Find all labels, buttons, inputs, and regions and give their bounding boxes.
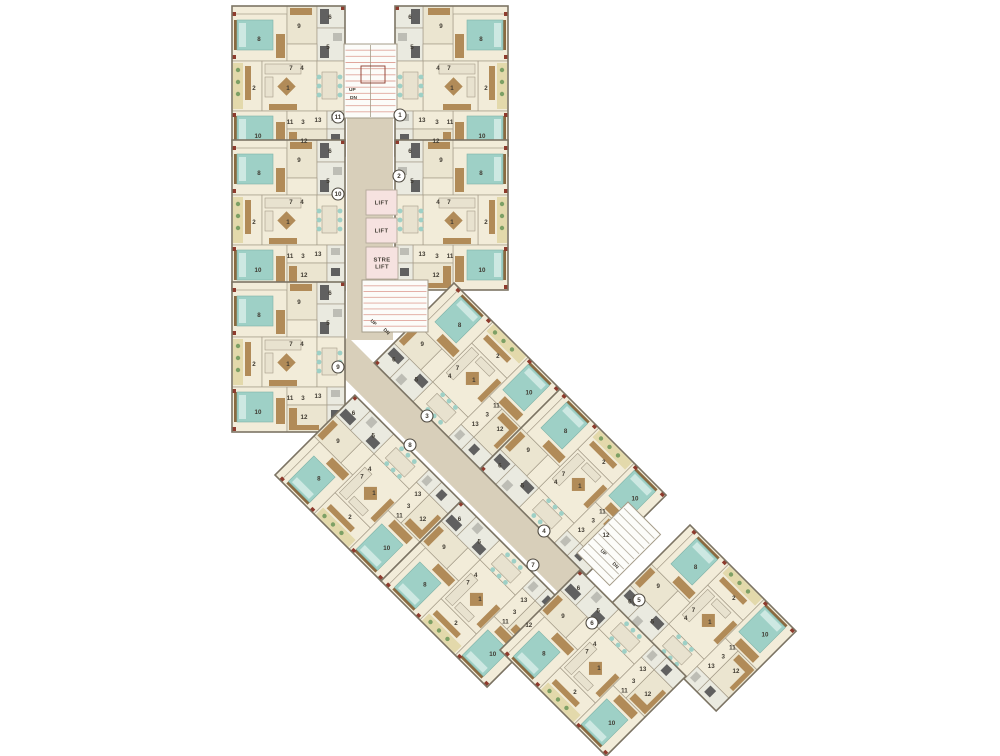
sofa-icon (265, 211, 273, 231)
room-label: 1 (286, 361, 290, 368)
stair-direction-label: UP (349, 87, 356, 93)
room-label: 2 (484, 219, 488, 226)
room-label: 10 (632, 496, 639, 503)
room-label: 7 (466, 580, 470, 587)
apartment-unit-2 (395, 140, 508, 290)
room-label: 2 (252, 85, 256, 92)
room-label: 13 (315, 117, 322, 124)
chair-icon (419, 75, 424, 80)
pillows-icon (239, 253, 246, 277)
chair-icon (317, 209, 322, 214)
unit-number: 4 (542, 528, 546, 535)
floor-plan: LIFTLIFTSTRELIFTUPDNUPDNUPDN111091234587… (0, 0, 1000, 756)
wardrobe-icon (290, 8, 312, 15)
unit-number: 8 (408, 442, 412, 449)
plant-icon (236, 80, 240, 84)
room-label: 8 (542, 651, 546, 658)
chair-icon (398, 75, 403, 80)
pillows-icon (239, 299, 246, 323)
wardrobe-icon (455, 34, 464, 58)
chair-icon (338, 209, 343, 214)
plant-icon (500, 92, 504, 96)
unit-number: 10 (334, 191, 342, 198)
room-label: 8 (479, 170, 483, 177)
room-label: 7 (289, 341, 293, 348)
room-label: 13 (315, 393, 322, 400)
dining-table-icon (322, 206, 337, 233)
unit-number: 1 (398, 112, 402, 119)
chair-icon (338, 218, 343, 223)
room-label: 8 (257, 36, 261, 43)
lift-label: LIFT (375, 201, 389, 207)
headboard-icon (503, 20, 506, 50)
room-label: 1 (286, 85, 290, 92)
room-label: 3 (722, 654, 726, 661)
lift-label: STRELIFT (373, 258, 390, 271)
headboard-icon (234, 20, 237, 50)
room-label: 13 (419, 117, 426, 124)
room-label: 4 (554, 479, 558, 486)
room-label: 6 (352, 410, 356, 417)
room-label: 9 (442, 544, 446, 551)
room-label: 10 (255, 409, 262, 416)
room-label: 11 (396, 512, 403, 519)
wc-icon (331, 390, 340, 397)
room-label: 13 (414, 491, 421, 498)
room-label: 2 (252, 361, 256, 368)
room-label: 10 (383, 545, 390, 552)
room-label: 9 (561, 613, 565, 620)
room-label: 5 (521, 482, 525, 489)
plant-icon (236, 344, 240, 348)
room-label: 12 (419, 516, 426, 523)
room-label: 5 (326, 320, 330, 327)
room-label: 6 (577, 585, 581, 592)
unit-number: 11 (335, 114, 342, 121)
apartment-unit-1 (395, 6, 508, 156)
room-label: 1 (578, 483, 582, 490)
tv-unit-icon (269, 238, 297, 244)
plant-icon (500, 68, 504, 72)
room-label: 2 (732, 595, 736, 602)
room-label: 9 (297, 157, 301, 164)
room-label: 13 (708, 663, 715, 670)
room-label: 3 (435, 253, 439, 260)
basin-icon (398, 33, 407, 41)
plant-icon (500, 226, 504, 230)
room-label: 4 (300, 199, 304, 206)
room-label: 11 (493, 402, 500, 409)
room-label: 4 (448, 373, 452, 380)
chair-icon (398, 93, 403, 98)
sofa-icon (265, 340, 301, 350)
room-label: 11 (447, 119, 454, 126)
tv-unit-icon (269, 104, 297, 110)
room-label: 8 (317, 476, 321, 483)
room-label: 8 (458, 322, 462, 329)
room-label: 9 (526, 447, 530, 454)
bath-fixture-icon (411, 143, 420, 158)
room-hall-passage (423, 178, 453, 195)
apartment-unit-9 (232, 282, 345, 432)
floor-plan-svg: LIFTLIFTSTRELIFTUPDNUPDNUPDN111091234587… (0, 0, 1000, 756)
room-label: 9 (420, 341, 424, 348)
room-label: 10 (479, 267, 486, 274)
room-label: 4 (300, 65, 304, 72)
room-label: 4 (474, 572, 478, 579)
room-label: 5 (326, 44, 330, 51)
plant-icon (500, 214, 504, 218)
room-label: 13 (639, 666, 646, 673)
unit-number: 9 (336, 364, 340, 371)
room-label: 12 (644, 691, 651, 698)
sofa-icon (265, 353, 273, 373)
chair-icon (419, 218, 424, 223)
room-label: 2 (252, 219, 256, 226)
headboard-icon (234, 250, 237, 280)
chair-icon (338, 351, 343, 356)
wc-icon (331, 248, 340, 255)
room-label: 11 (621, 687, 628, 694)
room-label: 1 (286, 219, 290, 226)
room-label: 12 (301, 414, 308, 421)
room-label: 13 (315, 251, 322, 258)
chair-icon (398, 227, 403, 232)
bench-icon (489, 66, 495, 100)
plant-icon (236, 368, 240, 372)
stair-direction-label: DN (350, 95, 357, 101)
room-label: 4 (684, 615, 688, 622)
chair-icon (317, 93, 322, 98)
room-hall-passage (423, 44, 453, 61)
room-label: 5 (415, 376, 419, 383)
wardrobe-icon (428, 8, 450, 15)
room-label: 1 (708, 619, 712, 626)
room-label: 7 (562, 471, 566, 478)
room-label: 4 (300, 341, 304, 348)
chair-icon (419, 209, 424, 214)
washer-icon (400, 268, 409, 276)
room-label: 1 (472, 377, 476, 384)
chair-icon (317, 75, 322, 80)
chair-icon (398, 209, 403, 214)
room-label: 5 (597, 608, 601, 615)
room-label: 3 (301, 119, 305, 126)
room-label: 6 (328, 148, 332, 155)
room-label: 5 (410, 178, 414, 185)
room-label: 12 (603, 532, 610, 539)
chair-icon (317, 84, 322, 89)
sofa-icon (467, 211, 475, 231)
room-label: 2 (454, 620, 458, 627)
room-label: 5 (372, 433, 376, 440)
sofa-icon (439, 198, 475, 208)
room-label: 3 (407, 503, 411, 510)
headboard-icon (234, 154, 237, 184)
staircase (344, 44, 397, 118)
bench-icon (489, 200, 495, 234)
room-label: 9 (297, 299, 301, 306)
room-label: 11 (287, 395, 294, 402)
room-label: 2 (496, 353, 500, 360)
room-label: 9 (297, 23, 301, 30)
room-hall-passage (287, 44, 317, 61)
room-label: 12 (497, 426, 504, 433)
room-label: 12 (433, 272, 440, 279)
room-label: 11 (599, 508, 606, 515)
room-label: 4 (593, 641, 597, 648)
room-label: 6 (498, 462, 502, 469)
room-label: 8 (257, 312, 261, 319)
room-label: 12 (301, 138, 308, 145)
headboard-icon (234, 296, 237, 326)
room-label: 3 (632, 678, 636, 685)
tv-unit-icon (269, 380, 297, 386)
room-label: 12 (525, 622, 532, 629)
room-label: 10 (526, 390, 533, 397)
room-label: 6 (628, 598, 632, 605)
room-label: 8 (694, 564, 698, 571)
room-label: 2 (602, 459, 606, 466)
room-label: 3 (592, 518, 596, 525)
unit-number: 5 (637, 597, 641, 604)
headboard-icon (234, 392, 237, 422)
plant-icon (236, 214, 240, 218)
basin-icon (333, 167, 342, 175)
room-label: 7 (447, 65, 451, 72)
room-label: 6 (408, 14, 412, 21)
room-label: 11 (287, 119, 294, 126)
room-label: 9 (336, 438, 340, 445)
room-label: 13 (520, 597, 527, 604)
room-label: 11 (447, 253, 454, 260)
bath-fixture-icon (411, 9, 420, 24)
lift-label: LIFT (375, 229, 389, 235)
chair-icon (317, 360, 322, 365)
pillows-icon (239, 157, 246, 181)
room-label: 11 (287, 253, 294, 260)
room-label: 3 (301, 395, 305, 402)
room-label: 10 (762, 632, 769, 639)
bench-icon (245, 342, 251, 376)
room-label: 1 (450, 219, 454, 226)
room-label: 4 (436, 199, 440, 206)
basin-icon (333, 309, 342, 317)
unit-number: 2 (397, 173, 401, 180)
room-label: 13 (472, 421, 479, 428)
room-label: 4 (436, 65, 440, 72)
sofa-icon (265, 77, 273, 97)
room-label: 12 (733, 668, 740, 675)
room-hall-passage (287, 320, 317, 337)
wardrobe-icon (276, 398, 285, 424)
wardrobe-icon (455, 168, 464, 192)
dining-table-icon (322, 72, 337, 99)
room-label: 7 (289, 65, 293, 72)
wardrobe-icon (276, 34, 285, 58)
chair-icon (317, 369, 322, 374)
room-label: 6 (408, 148, 412, 155)
plant-icon (500, 80, 504, 84)
apartment-unit-11 (232, 6, 345, 156)
room-label: 7 (289, 199, 293, 206)
wardrobe-icon (290, 284, 312, 291)
wardrobe-icon (276, 256, 285, 282)
room-label: 2 (573, 689, 577, 696)
room-label: 8 (423, 582, 427, 589)
room-label: 1 (597, 665, 601, 672)
headboard-icon (503, 154, 506, 184)
room-label: 5 (410, 44, 414, 51)
unit-number: 6 (590, 620, 594, 627)
room-label: 7 (456, 365, 460, 372)
chair-icon (419, 93, 424, 98)
room-label: 8 (564, 428, 568, 435)
plant-icon (236, 356, 240, 360)
sofa-icon (467, 77, 475, 97)
room-label: 12 (301, 272, 308, 279)
headboard-icon (503, 250, 506, 280)
room-label: 10 (255, 133, 262, 140)
dining-table-icon (403, 72, 418, 99)
plant-icon (236, 202, 240, 206)
room-label: 7 (447, 199, 451, 206)
bench-icon (245, 200, 251, 234)
kitchen-counter-icon (289, 425, 319, 430)
room-label: 11 (502, 618, 509, 625)
chair-icon (419, 84, 424, 89)
chair-icon (419, 227, 424, 232)
room-label: 6 (328, 290, 332, 297)
room-label: 13 (419, 251, 426, 258)
dining-table-icon (403, 206, 418, 233)
chair-icon (317, 218, 322, 223)
plant-icon (236, 226, 240, 230)
room-label: 10 (489, 651, 496, 658)
chair-icon (338, 227, 343, 232)
tv-unit-icon (443, 238, 471, 244)
unit-number: 7 (531, 562, 535, 569)
room-label: 8 (257, 170, 261, 177)
washer-icon (331, 268, 340, 276)
room-label: 1 (478, 596, 482, 603)
room-label: 6 (458, 516, 462, 523)
pillows-icon (239, 395, 246, 419)
wardrobe-icon (455, 256, 464, 282)
bench-icon (245, 66, 251, 100)
room-label: 3 (301, 253, 305, 260)
room-label: 5 (651, 618, 655, 625)
chair-icon (398, 218, 403, 223)
basin-icon (333, 33, 342, 41)
chair-icon (338, 93, 343, 98)
tv-unit-icon (443, 104, 471, 110)
wardrobe-icon (276, 310, 285, 334)
room-label: 13 (578, 527, 585, 534)
room-label: 9 (439, 157, 443, 164)
room-label: 6 (328, 14, 332, 21)
wardrobe-icon (276, 168, 285, 192)
room-label: 10 (255, 267, 262, 274)
plant-icon (500, 202, 504, 206)
room-label: 3 (513, 609, 517, 616)
room-label: 10 (608, 720, 615, 727)
room-label: 5 (478, 539, 482, 546)
plant-icon (236, 68, 240, 72)
chair-icon (317, 351, 322, 356)
pillows-icon (494, 253, 501, 277)
room-label: 1 (372, 490, 376, 497)
room-label: 2 (348, 514, 352, 521)
sofa-icon (265, 64, 301, 74)
room-label: 9 (656, 583, 660, 590)
chair-icon (338, 75, 343, 80)
chair-icon (398, 84, 403, 89)
sofa-icon (439, 64, 475, 74)
pillows-icon (494, 157, 501, 181)
room-label: 7 (360, 474, 364, 481)
room-label: 8 (479, 36, 483, 43)
room-label: 1 (450, 85, 454, 92)
room-label: 3 (435, 119, 439, 126)
room-label: 11 (729, 644, 736, 651)
room-label: 3 (486, 412, 490, 419)
room-label: 2 (484, 85, 488, 92)
room-label: 4 (368, 466, 372, 473)
room-label: 5 (326, 178, 330, 185)
sofa-icon (265, 198, 301, 208)
unit-number: 3 (425, 413, 429, 420)
room-label: 7 (585, 649, 589, 656)
wc-icon (400, 248, 409, 255)
room-hall-passage (287, 178, 317, 195)
room-label: 9 (439, 23, 443, 30)
chair-icon (338, 84, 343, 89)
room-label: 7 (692, 607, 696, 614)
pillows-icon (494, 23, 501, 47)
chair-icon (317, 227, 322, 232)
apartment-unit-10 (232, 140, 345, 290)
plant-icon (236, 92, 240, 96)
room-label: 6 (392, 356, 396, 363)
pillows-icon (239, 23, 246, 47)
room-label: 10 (479, 133, 486, 140)
room-label: 12 (433, 138, 440, 145)
